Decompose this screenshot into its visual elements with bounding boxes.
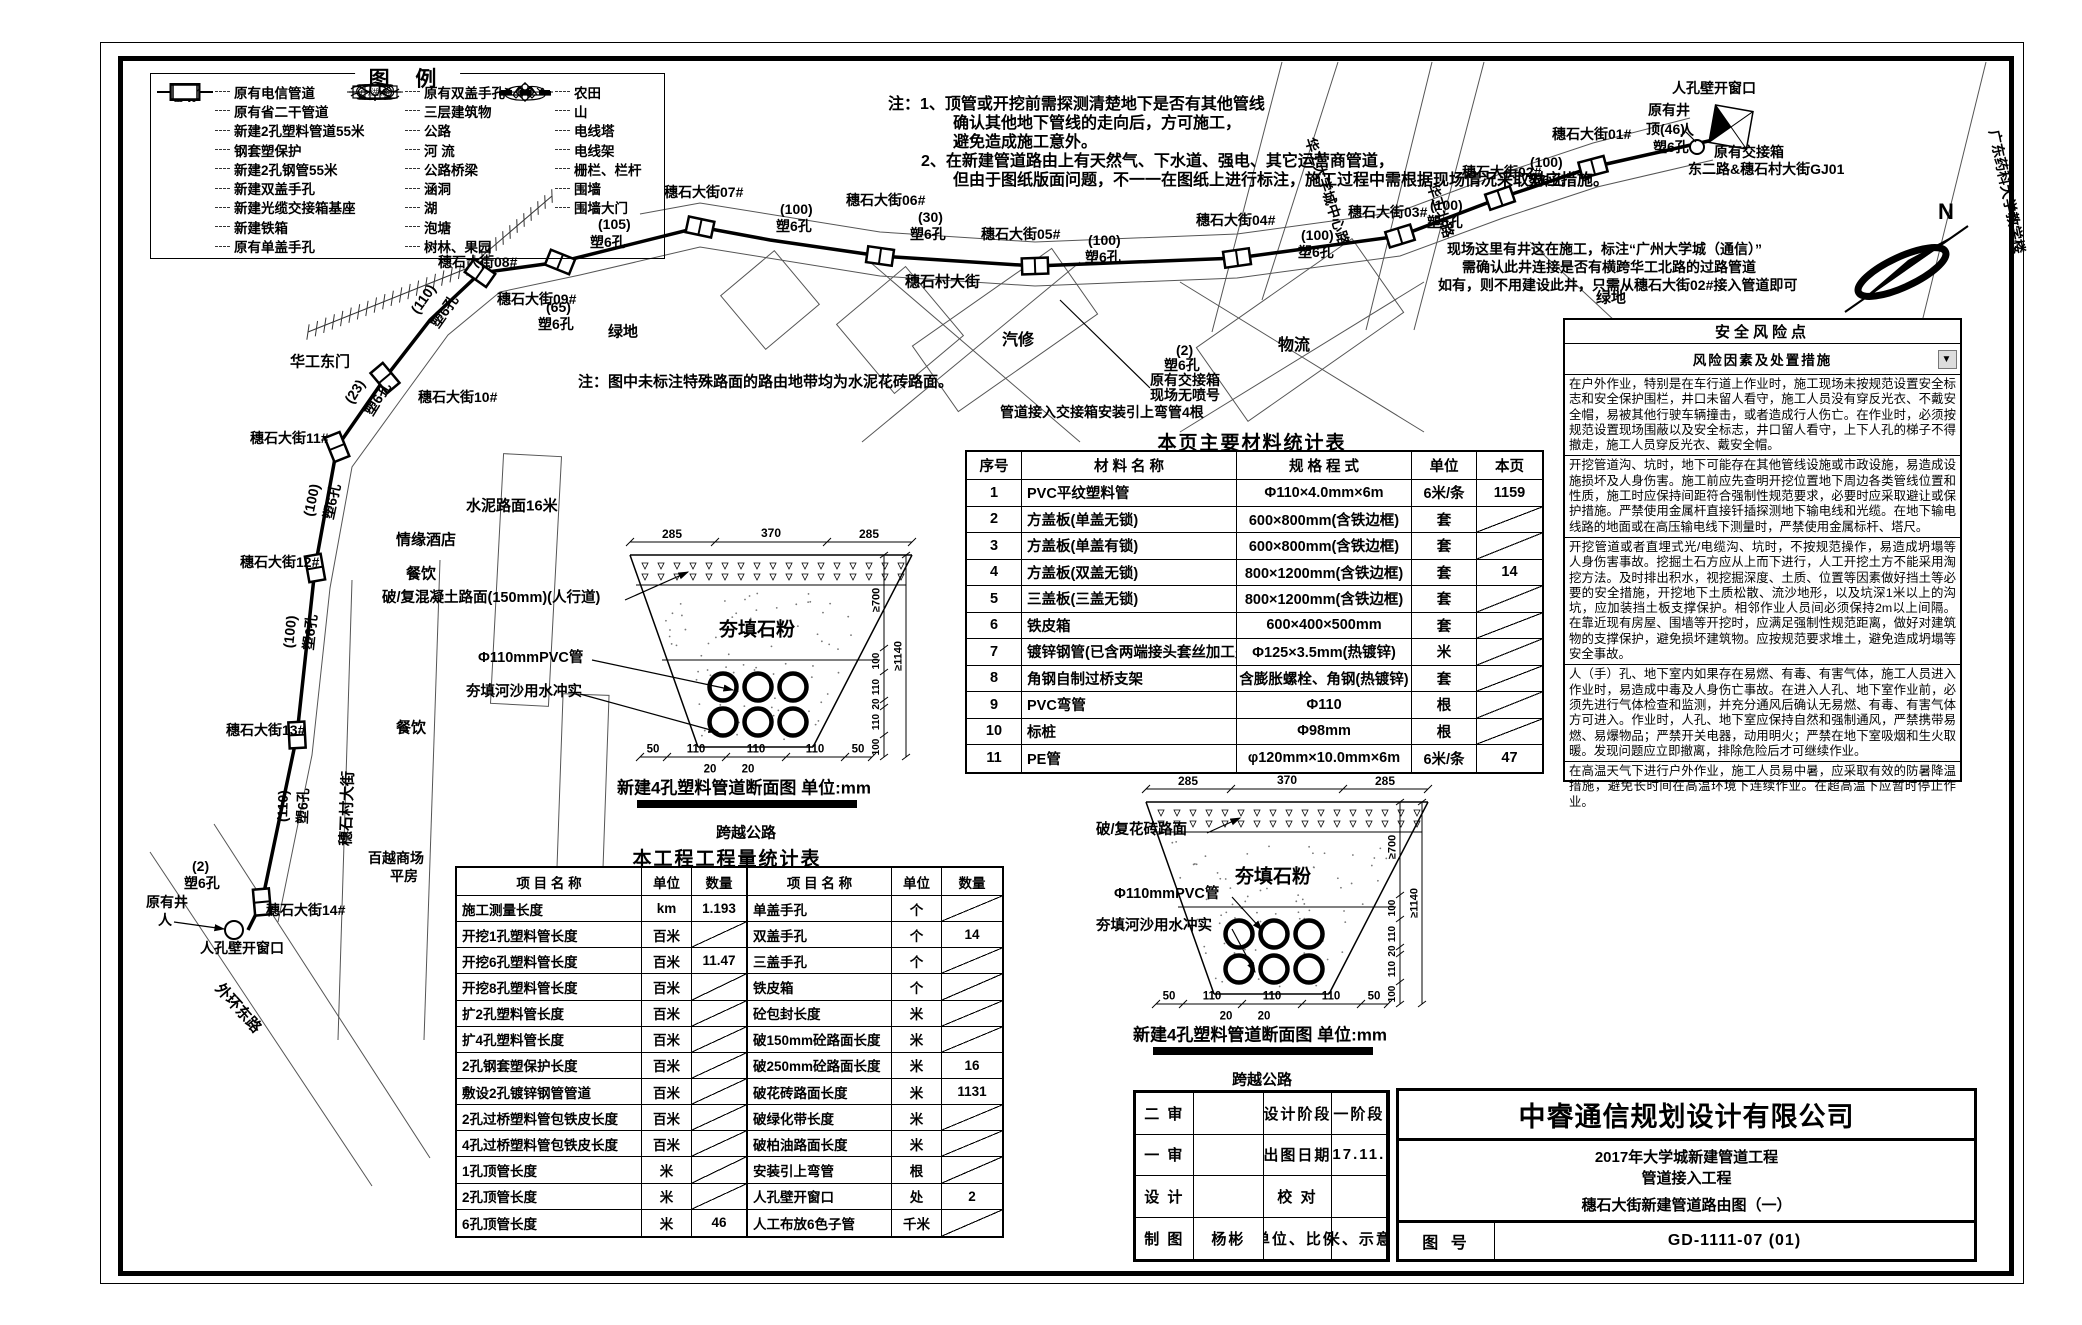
- map-label: 管道接入交接箱安装引上弯管4根: [1000, 405, 1204, 419]
- column-header: 数量: [692, 868, 746, 896]
- cell: 百米: [642, 1105, 692, 1131]
- sheet-name: 穗石大街新建管道路由图（一）: [1581, 1194, 1791, 1215]
- cell: 设计阶段: [1264, 1093, 1332, 1135]
- dimension-label: 285: [1178, 775, 1198, 787]
- table-row: 敷设2孔镀锌钢管管道百米: [457, 1079, 746, 1105]
- map-label: (110): [275, 790, 290, 822]
- table-row: 项 目 名 称单位数量: [748, 868, 1002, 896]
- cell: 单位、比例: [1264, 1218, 1332, 1260]
- legend-item-label: 新建铁箱: [234, 217, 288, 237]
- legend-item-label: 新建2孔钢管55米: [234, 159, 338, 179]
- cell: 铁皮箱: [748, 974, 892, 1000]
- map-label: 塑6孔: [1528, 173, 1564, 187]
- table-row: 2孔过桥塑料管包铁皮长度百米: [457, 1105, 746, 1131]
- legend-item-label: 湖: [424, 197, 438, 217]
- cell: 套: [1412, 586, 1477, 613]
- legend-item-label: 涵洞: [424, 178, 451, 198]
- chevron-down-icon: ▼: [1942, 354, 1954, 365]
- title-block-row: 制 图杨彬单位、比例米、示意: [1136, 1218, 1387, 1260]
- cell: [942, 974, 1002, 1000]
- column-header: 规 格 程 式: [1237, 452, 1412, 480]
- dimension-label: 285: [859, 528, 879, 540]
- map-label: 如有，则不用建设此井，只需从穗石大街02#接入管道即可: [1438, 278, 1797, 292]
- company-name: 中睿通信规划设计有限公司: [1399, 1091, 1974, 1141]
- map-label: 塑6孔: [1298, 245, 1334, 259]
- map-label: 原有井: [146, 895, 188, 909]
- dimension-label: 110: [872, 679, 882, 695]
- dimension-label: 100: [1388, 986, 1398, 1003]
- map-label: 穗石大街11#: [250, 431, 329, 445]
- quantity-table: 项 目 名 称单位数量施工测量长度km1.193开挖1孔塑料管长度百米开挖6孔塑…: [455, 866, 1004, 1238]
- map-label: 穗石大街06#: [846, 193, 925, 207]
- cell: [692, 1053, 746, 1079]
- safety-paragraph: 人（手）孔、地下室内如果存在易燃、有毒、有害气体，施工人员进入作业时，易造成中毒…: [1565, 665, 1960, 762]
- column-header: 单位: [1412, 452, 1477, 480]
- cell: km: [642, 896, 692, 922]
- map-label: (100): [780, 202, 813, 216]
- dimension-label: 370: [1277, 774, 1297, 786]
- table-row: 人孔壁开窗口处2: [748, 1184, 1002, 1210]
- cell: [942, 896, 1002, 922]
- cell: 校 对: [1264, 1176, 1332, 1218]
- cell: 根: [1412, 692, 1477, 719]
- dimension-label: 110: [1388, 926, 1398, 942]
- table-row: 破250mm砼路面长度米16: [748, 1053, 1002, 1079]
- cell: 开挖6孔塑料管长度: [457, 948, 642, 974]
- cell: [1477, 666, 1542, 693]
- cell: 套: [1412, 666, 1477, 693]
- dimension-label: 110: [1388, 961, 1398, 977]
- safety-paragraph: 在高温天气下进行户外作业，施工人员易中暑，应采取有效的防暑降温措施，避免长时间在…: [1565, 762, 1960, 812]
- cell: 含膨胀螺栓、角钢(热镀锌): [1237, 666, 1412, 693]
- dimension-label: 110: [1322, 991, 1341, 1003]
- cell: 600×800mm(含铁边框): [1237, 533, 1412, 560]
- table-row: 扩2孔塑料管长度百米: [457, 1001, 746, 1027]
- cell: 14: [1477, 560, 1542, 587]
- map-label: 塑6孔: [184, 876, 220, 890]
- map-label: 夯填石粉: [719, 621, 795, 640]
- legend-dash: [215, 226, 230, 227]
- legend-item: 钢套塑保护: [157, 140, 365, 159]
- map-label: 绿地: [608, 325, 638, 340]
- cell: 百米: [642, 1079, 692, 1105]
- map-label: 情缘酒店: [396, 533, 456, 548]
- cell: Φ110: [1237, 692, 1412, 719]
- legend-item: 涵洞: [347, 178, 505, 197]
- cell: 10: [967, 719, 1022, 746]
- map-label: 餐饮: [396, 721, 426, 736]
- cell: 根: [892, 1157, 942, 1183]
- legend-item: 新建光缆交接箱基座: [157, 198, 365, 217]
- map-label: 百越商场: [368, 851, 424, 865]
- table-row: 8角钢自制过桥支架含膨胀螺栓、角钢(热镀锌)套: [967, 666, 1542, 693]
- legend-dash: [405, 91, 420, 92]
- legend-item: 广州公路公路: [347, 121, 505, 140]
- cell: 设 计: [1136, 1176, 1194, 1218]
- cell: 6米/条: [1412, 745, 1477, 772]
- cell: [1477, 692, 1542, 719]
- map-label: 破/复花砖路面: [1096, 823, 1187, 838]
- dimension-label: 285: [662, 528, 682, 540]
- legend-item: 泡塘: [347, 217, 505, 236]
- note-line: 注：1、顶管或开挖前需探测清楚地下是否有其他管线: [888, 97, 1265, 113]
- map-label: (65): [546, 300, 571, 314]
- cell: 米: [642, 1157, 692, 1183]
- legend-dash: [405, 110, 420, 111]
- legend-item-label: 山: [574, 101, 588, 121]
- legend-dash: [555, 110, 570, 111]
- map-label: 餐饮: [406, 567, 436, 582]
- legend-item-label: 公路: [424, 120, 451, 140]
- column-header: 项 目 名 称: [748, 868, 892, 896]
- cell: 镀锌钢管(已含两端接头套丝加工费): [1022, 639, 1237, 666]
- table-row: 1PVC平纹塑料管Φ110×4.0mm×6m6米/条1159: [967, 480, 1542, 507]
- cell: 米: [892, 1105, 942, 1131]
- map-label: 穗石大街08#: [438, 255, 517, 269]
- cell: [1477, 507, 1542, 534]
- dimension-label: ≥1140: [1410, 888, 1421, 918]
- table-row: 开挖8孔塑料管长度百米: [457, 974, 746, 1000]
- cell: 百米: [642, 974, 692, 1000]
- dropdown-button[interactable]: ▼: [1938, 350, 1957, 369]
- legend-dash: [555, 91, 570, 92]
- cell: 百米: [642, 922, 692, 948]
- dimension-label: 110: [687, 744, 706, 756]
- cell: 米: [892, 1053, 942, 1079]
- safety-paragraph: 开挖管道沟、坑时，地下可能存在其他管线设施或市政设施，易造成设施损坏及人身伤害。…: [1565, 456, 1960, 537]
- cell: [1477, 533, 1542, 560]
- legend-item-label: 栅栏、栏杆: [574, 159, 642, 179]
- table-row: 三盖手孔个: [748, 948, 1002, 974]
- cell: 2: [942, 1184, 1002, 1210]
- table-row: 9PVC弯管Φ110根: [967, 692, 1542, 719]
- cell: 米、示意: [1332, 1218, 1387, 1260]
- table-row: 施工测量长度km1.193: [457, 896, 746, 922]
- cell: 一阶段: [1332, 1093, 1387, 1135]
- map-label: 塑6孔: [590, 235, 626, 249]
- table-row: 3方盖板(单盖有锁)600×800mm(含铁边框)套: [967, 533, 1542, 560]
- cell: 6孔顶管长度: [457, 1210, 642, 1236]
- dimension-label: 110: [1263, 991, 1282, 1003]
- cell: 一 审: [1136, 1135, 1194, 1177]
- dimension-label: 50: [1368, 991, 1381, 1003]
- cell: [1194, 1176, 1264, 1218]
- cell: PE管: [1022, 745, 1237, 772]
- cell: [692, 1027, 746, 1053]
- cell: 套: [1412, 560, 1477, 587]
- legend-item-label: 电线塔: [574, 120, 615, 140]
- column-header: 项 目 名 称: [457, 868, 642, 896]
- cell: 套: [1412, 507, 1477, 534]
- legend-item: 新建双盖手孔: [157, 178, 365, 197]
- map-label: 华工东门: [290, 355, 350, 370]
- map-label: 穗石大街01#: [1552, 127, 1631, 141]
- legend-dash: [215, 246, 230, 247]
- cell: 2孔钢套塑保护长度: [457, 1053, 642, 1079]
- old-single-handhole-icon: [157, 82, 213, 102]
- cell: 米: [892, 1079, 942, 1105]
- cell: 600×400×500mm: [1237, 613, 1412, 640]
- cell: 16: [942, 1053, 1002, 1079]
- map-label: 穗石大街13#: [226, 723, 305, 737]
- cell: 方盖板(单盖无锁): [1022, 507, 1237, 534]
- dimension-label: 110: [1203, 991, 1222, 1003]
- map-label: 原有交接箱: [1714, 145, 1784, 159]
- legend-dash: [215, 130, 230, 131]
- cell: 1131: [942, 1079, 1002, 1105]
- legend-dash: [405, 246, 420, 247]
- column-header: 数量: [942, 868, 1002, 896]
- table-row: 人工布放6色子管千米: [748, 1210, 1002, 1236]
- legend-dash: [555, 149, 570, 150]
- cell: 11: [967, 745, 1022, 772]
- legend-item: 围墙: [497, 178, 642, 197]
- legend-dash: [215, 91, 230, 92]
- cell: 7: [967, 639, 1022, 666]
- map-label: 注：图中未标注特殊路面的路由地带均为水泥花砖路面。: [578, 375, 953, 390]
- map-label: 穗石村大街: [905, 275, 980, 290]
- cell: 8: [967, 666, 1022, 693]
- cell: 14: [942, 922, 1002, 948]
- map-label: 塑6孔: [301, 614, 319, 651]
- column-header: 单位: [892, 868, 942, 896]
- cell: 个: [892, 922, 942, 948]
- map-label: Φ110mmPVC管: [1114, 887, 1219, 902]
- legend-item: 省二干原有省二干管道: [157, 101, 365, 120]
- title-block-row: 二 审设计阶段一阶段: [1136, 1093, 1387, 1135]
- column-header: 材 料 名 称: [1022, 452, 1237, 480]
- cell: 双盖手孔: [748, 922, 892, 948]
- cell: 2孔顶管长度: [457, 1184, 642, 1210]
- legend-item: 围墙大门: [497, 198, 642, 217]
- cell: [692, 1131, 746, 1157]
- cell: 角钢自制过桥支架: [1022, 666, 1237, 693]
- cell: 800×1200mm(含铁边框): [1237, 560, 1412, 587]
- cell: 11.47: [692, 948, 746, 974]
- map-label: 夯填河沙用水冲实: [466, 685, 582, 700]
- map-label: 穗石大街07#: [664, 185, 743, 199]
- cell: 米: [892, 1131, 942, 1157]
- legend-item-label: 泡塘: [424, 217, 451, 237]
- legend-dash: [215, 168, 230, 169]
- map-label: 穗石村大街: [339, 771, 357, 846]
- map-label: (100): [1088, 233, 1121, 247]
- legend-item: 电线架: [497, 140, 642, 159]
- cell: 方盖板(双盖无锁): [1022, 560, 1237, 587]
- title-block-main: 中睿通信规划设计有限公司 2017年大学城新建管道工程 管道接入工程 穗石大街新…: [1396, 1088, 1977, 1262]
- table-row: 5三盖板(三盖无锁)800×1200mm(含铁边框)套: [967, 586, 1542, 613]
- legend-item-label: 原有电信管道: [234, 82, 315, 102]
- cell: [1477, 639, 1542, 666]
- legend-item: 河 流: [347, 140, 505, 159]
- legend-item-label: 电线架: [574, 140, 615, 160]
- cell: 5: [967, 586, 1022, 613]
- legend-dash: [405, 130, 420, 131]
- map-label: 穗石大街12#: [240, 555, 319, 569]
- dimension-label: 285: [1375, 775, 1395, 787]
- legend-dash: [555, 207, 570, 208]
- cell: [942, 1157, 1002, 1183]
- table-row: 砼包封长度米: [748, 1001, 1002, 1027]
- legend-dash: [405, 188, 420, 189]
- legend-item-label: 围墙: [574, 178, 601, 198]
- table-row: 2方盖板(单盖无锁)600×800mm(含铁边框)套: [967, 507, 1542, 534]
- cell: [692, 1001, 746, 1027]
- cell: [942, 948, 1002, 974]
- cell: 破150mm砼路面长度: [748, 1027, 892, 1053]
- drawing-no-label: 图 号: [1399, 1223, 1495, 1259]
- map-label: 穗石大街03#: [1348, 205, 1427, 219]
- table-row: 破150mm砼路面长度米: [748, 1027, 1002, 1053]
- cell: [692, 1105, 746, 1131]
- cell: 千米: [892, 1210, 942, 1236]
- legend-item-label: 原有省二干管道: [234, 101, 329, 121]
- cell: 百米: [642, 1027, 692, 1053]
- map-label: 穗石大街05#: [981, 227, 1060, 241]
- dimension-label: ≥1140: [894, 641, 905, 671]
- dimension-label: 110: [806, 744, 825, 756]
- cell: 开挖8孔塑料管长度: [457, 974, 642, 1000]
- map-label: (100): [281, 615, 298, 649]
- map-label: 夯填河沙用水冲实: [1096, 919, 1212, 934]
- map-label: 需确认此井连接是否有横跨华工北路的过路管道: [1462, 260, 1756, 274]
- cell: [692, 1157, 746, 1183]
- cell: φ120mm×10.0mm×6m: [1237, 745, 1412, 772]
- project-line1: 2017年大学城新建管道工程: [1595, 1146, 1778, 1167]
- table-row: 单盖手孔个: [748, 896, 1002, 922]
- cell: 根: [1412, 719, 1477, 746]
- table-row: 序号材 料 名 称规 格 程 式单位本页: [967, 452, 1542, 480]
- map-label: (2): [1176, 343, 1193, 357]
- legend-dash: [555, 130, 570, 131]
- table-row: 扩4孔塑料管长度百米: [457, 1027, 746, 1053]
- legend-dash: [215, 110, 230, 111]
- dimension-label: 100: [1388, 900, 1398, 917]
- legend-item: 山: [497, 101, 642, 120]
- safety-paragraph: 在户外作业，特别是在车行道上作业时，施工现场未按规范设置安全标志和安全保护围栏，…: [1565, 375, 1960, 456]
- map-label: 现场无喷号: [1150, 388, 1220, 402]
- legend-item-label: 三层建筑物: [424, 101, 492, 121]
- wall-gate-icon: [497, 82, 553, 102]
- table-row: 铁皮箱个: [748, 974, 1002, 1000]
- drawing-no-value: GD-1111-07 (01): [1495, 1223, 1974, 1259]
- cell: 2017.11.10: [1332, 1135, 1387, 1177]
- cell: 百米: [642, 1001, 692, 1027]
- safety-risk-panel: 安全风险点 风险因素及处置措施 ▼ 在户外作业，特别是在车行道上作业时，施工现场…: [1563, 318, 1962, 782]
- cell: Φ125×3.5mm(热镀锌): [1237, 639, 1412, 666]
- dimension-label: 20: [742, 764, 755, 776]
- cell: [1477, 613, 1542, 640]
- map-label: 东二路&穗石村大街GJ01: [1688, 162, 1844, 176]
- legend-box: 图 例 电信原有电信管道省二干原有省二干管道(55)塑2孔新建2孔塑料管道55米…: [150, 73, 665, 259]
- map-label: 塑6孔: [295, 788, 310, 824]
- cell: 百米: [642, 1131, 692, 1157]
- safety-subtitle: 风险因素及处置措施: [1693, 349, 1833, 369]
- legend-item: 公路桥梁: [347, 159, 505, 178]
- map-label: 夯填石粉: [1235, 868, 1311, 887]
- legend-item-label: 新建光缆交接箱基座: [234, 197, 356, 217]
- cell: [692, 1184, 746, 1210]
- column-header: 序号: [967, 452, 1022, 480]
- cell: 方盖板(单盖有锁): [1022, 533, 1237, 560]
- legend-dash: [215, 188, 230, 189]
- table-row: 4方盖板(双盖无锁)800×1200mm(含铁边框)套14: [967, 560, 1542, 587]
- materials-table: 序号材 料 名 称规 格 程 式单位本页1PVC平纹塑料管Φ110×4.0mm×…: [965, 450, 1544, 774]
- cell: 套: [1412, 613, 1477, 640]
- cell: 破绿化带长度: [748, 1105, 892, 1131]
- cell: 1孔顶管长度: [457, 1157, 642, 1183]
- cell: 杨彬: [1194, 1218, 1264, 1260]
- map-label: 塑6孔: [910, 227, 946, 241]
- cell: 破花砖路面长度: [748, 1079, 892, 1105]
- cell: 破柏油路面长度: [748, 1131, 892, 1157]
- map-label: 穗石大街14#: [266, 903, 345, 917]
- legend-item-label: 新建2孔塑料管道55米: [234, 120, 365, 140]
- table-row: 6铁皮箱600×400×500mm套: [967, 613, 1542, 640]
- cell: 9: [967, 692, 1022, 719]
- map-label: 穗石大街04#: [1196, 213, 1275, 227]
- map-label: 水泥路面16米: [466, 499, 558, 514]
- map-label: (30): [918, 210, 943, 224]
- cell: [942, 1105, 1002, 1131]
- table-row: 破柏油路面长度米: [748, 1131, 1002, 1157]
- cell: 600×800mm(含铁边框): [1237, 507, 1412, 534]
- cell: 4: [967, 560, 1022, 587]
- table-row: 6孔顶管长度米46: [457, 1210, 746, 1236]
- cell: 6: [967, 613, 1022, 640]
- map-label: (105): [598, 217, 631, 231]
- cell: 4孔过桥塑料管包铁皮长度: [457, 1131, 642, 1157]
- table-row: 破绿化带长度米: [748, 1105, 1002, 1131]
- cell: 砼包封长度: [748, 1001, 892, 1027]
- dimension-label: 110: [747, 744, 766, 756]
- map-label: 平房: [390, 869, 418, 883]
- map-label: 人: [158, 913, 172, 927]
- cell: [692, 974, 746, 1000]
- legend-item-label: 公路桥梁: [424, 159, 478, 179]
- map-label: 新建4孔塑料管道断面图 单位:mm: [1133, 1027, 1387, 1044]
- cell: 米: [642, 1184, 692, 1210]
- cell: 米: [642, 1210, 692, 1236]
- cell: 三盖手孔: [748, 948, 892, 974]
- map-label: 人孔壁开窗口: [200, 941, 284, 955]
- cell: [942, 1027, 1002, 1053]
- map-label: 塑6孔: [1164, 358, 1200, 372]
- dimension-label: 20: [704, 764, 717, 776]
- cell: 出图日期: [1264, 1135, 1332, 1177]
- dimension-label: ≥700: [872, 588, 883, 612]
- legend-dash: [215, 149, 230, 150]
- dimension-label: 20: [1258, 1011, 1271, 1023]
- map-label: (2): [192, 859, 209, 873]
- table-row: 破花砖路面长度米1131: [748, 1079, 1002, 1105]
- cell: 6米/条: [1412, 480, 1477, 507]
- legend-item: (55)钢2孔新建2孔钢管55米: [157, 159, 365, 178]
- cell: [1477, 586, 1542, 613]
- map-label: 汽修: [1002, 333, 1034, 349]
- cell: PVC平纹塑料管: [1022, 480, 1237, 507]
- cell: [692, 1079, 746, 1105]
- dimension-label: 370: [761, 527, 781, 539]
- legend-item-label: 原有双盖手孔: [424, 82, 505, 102]
- map-label: 现场这里有井这在施工，标注“广州大学城（通信）”: [1447, 242, 1762, 256]
- cell: 1.193: [692, 896, 746, 922]
- cell: 800×1200mm(含铁边框): [1237, 586, 1412, 613]
- cell: [1194, 1093, 1264, 1135]
- dimension-label: 50: [1163, 991, 1176, 1003]
- project-names: 2017年大学城新建管道工程 管道接入工程 穗石大街新建管道路由图（一）: [1399, 1141, 1974, 1223]
- title-block-row: 设 计校 对: [1136, 1176, 1387, 1218]
